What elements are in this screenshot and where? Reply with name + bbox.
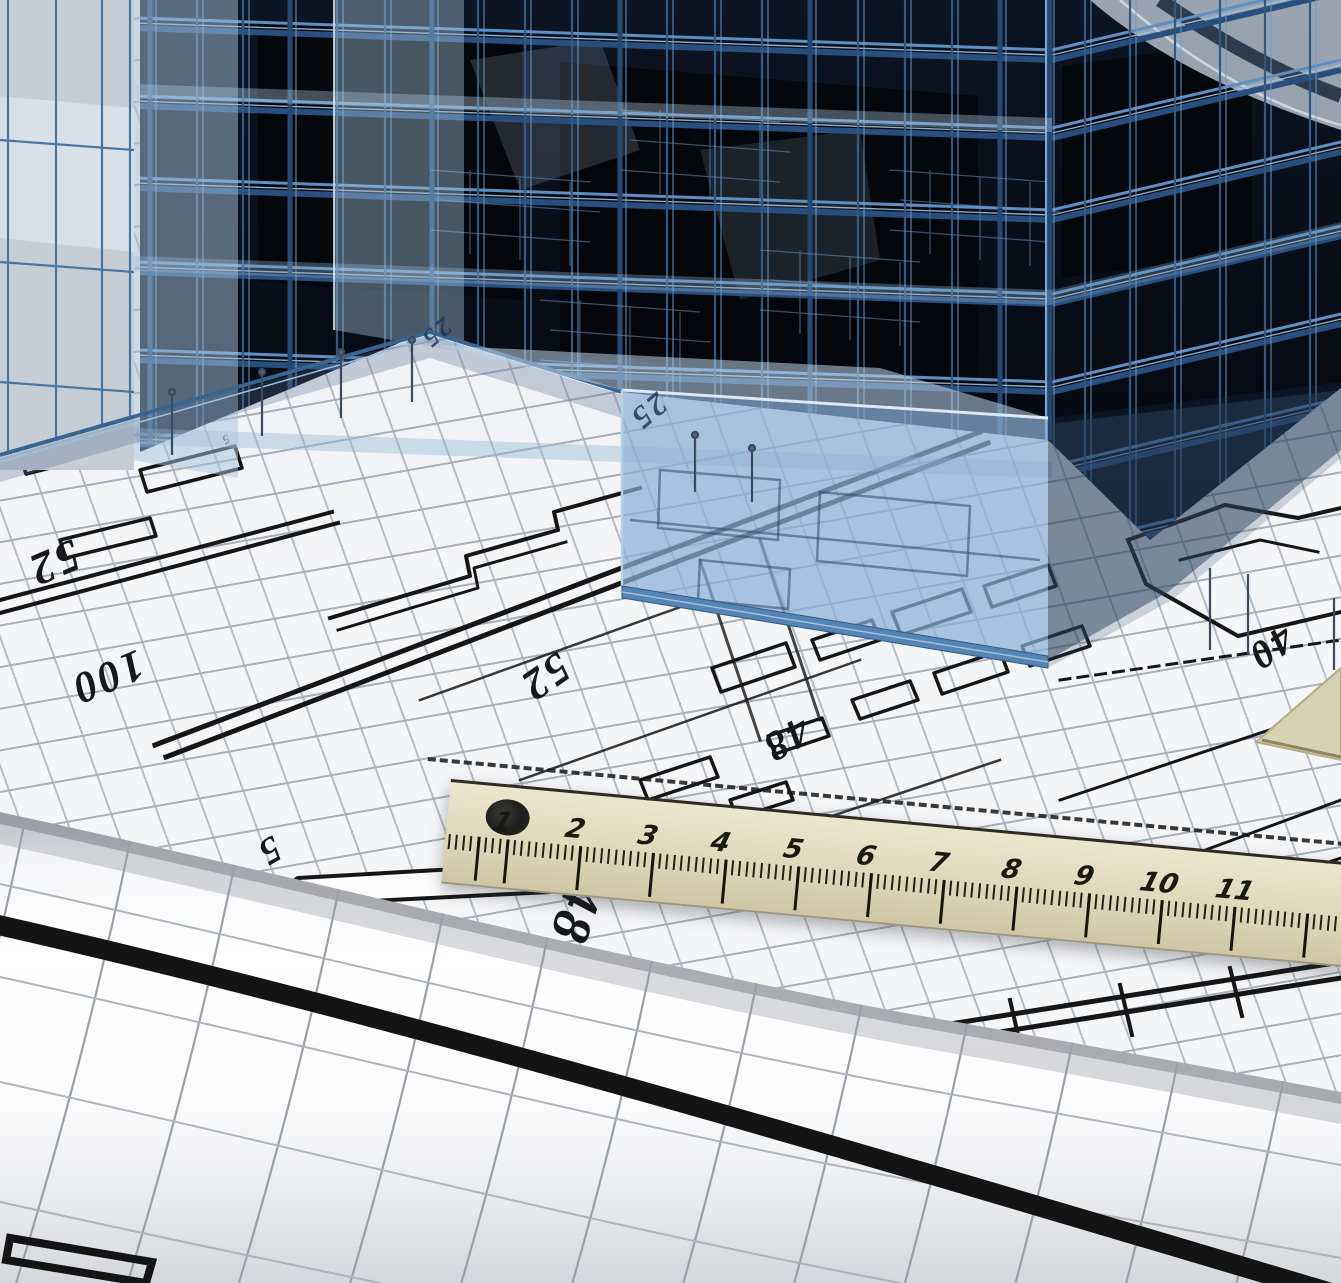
rolled-blueprint (0, 0, 1341, 1283)
architecture-blueprint-scene: 52 100 52 48 48 5 40 40 25 25 52 5 (0, 0, 1341, 1283)
